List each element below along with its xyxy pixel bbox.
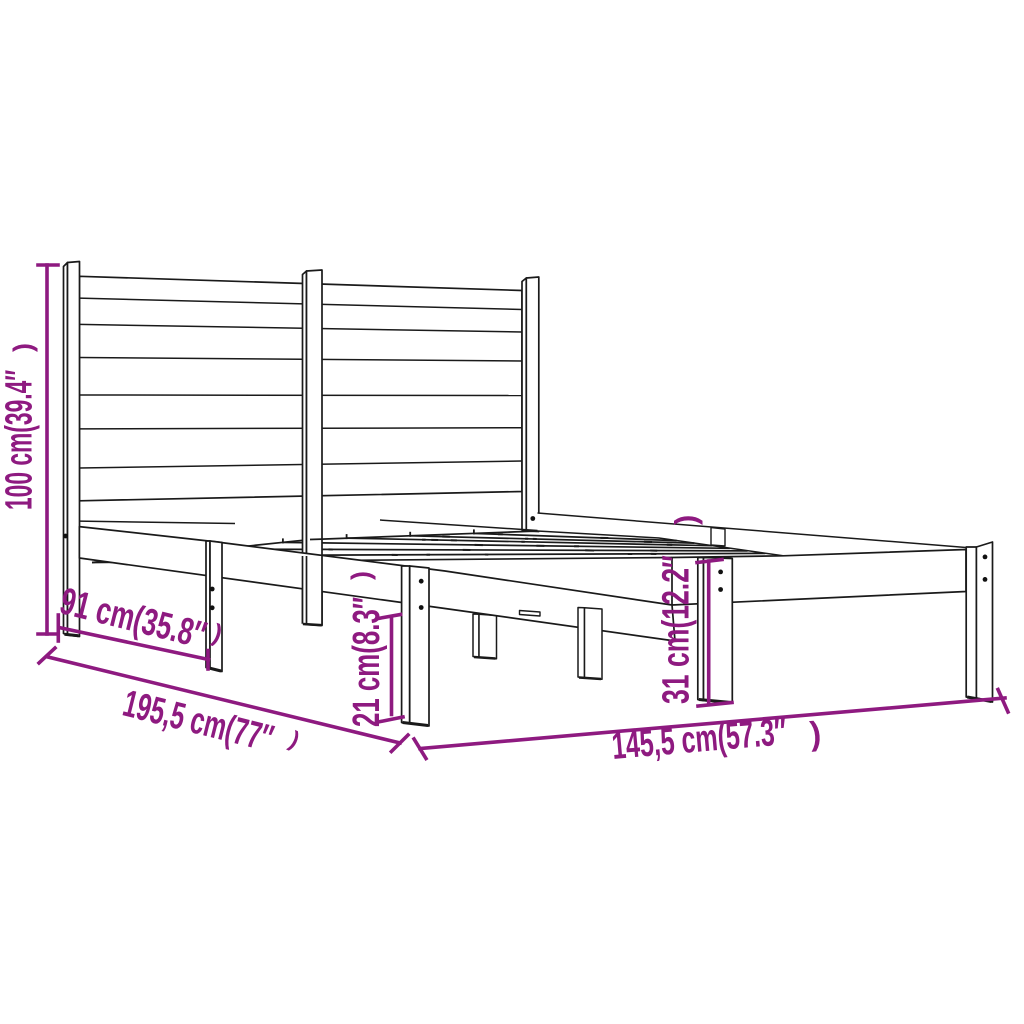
svg-text:100 cm(39.4″: 100 cm(39.4″ [0, 370, 40, 510]
svg-text:31 cm(12.2″: 31 cm(12.2″ [654, 555, 697, 704]
svg-text:): ) [668, 515, 703, 525]
svg-text:): ) [8, 343, 38, 352]
svg-text:21 cm(8.3″: 21 cm(8.3″ [345, 597, 387, 727]
svg-text:): ) [346, 571, 376, 580]
